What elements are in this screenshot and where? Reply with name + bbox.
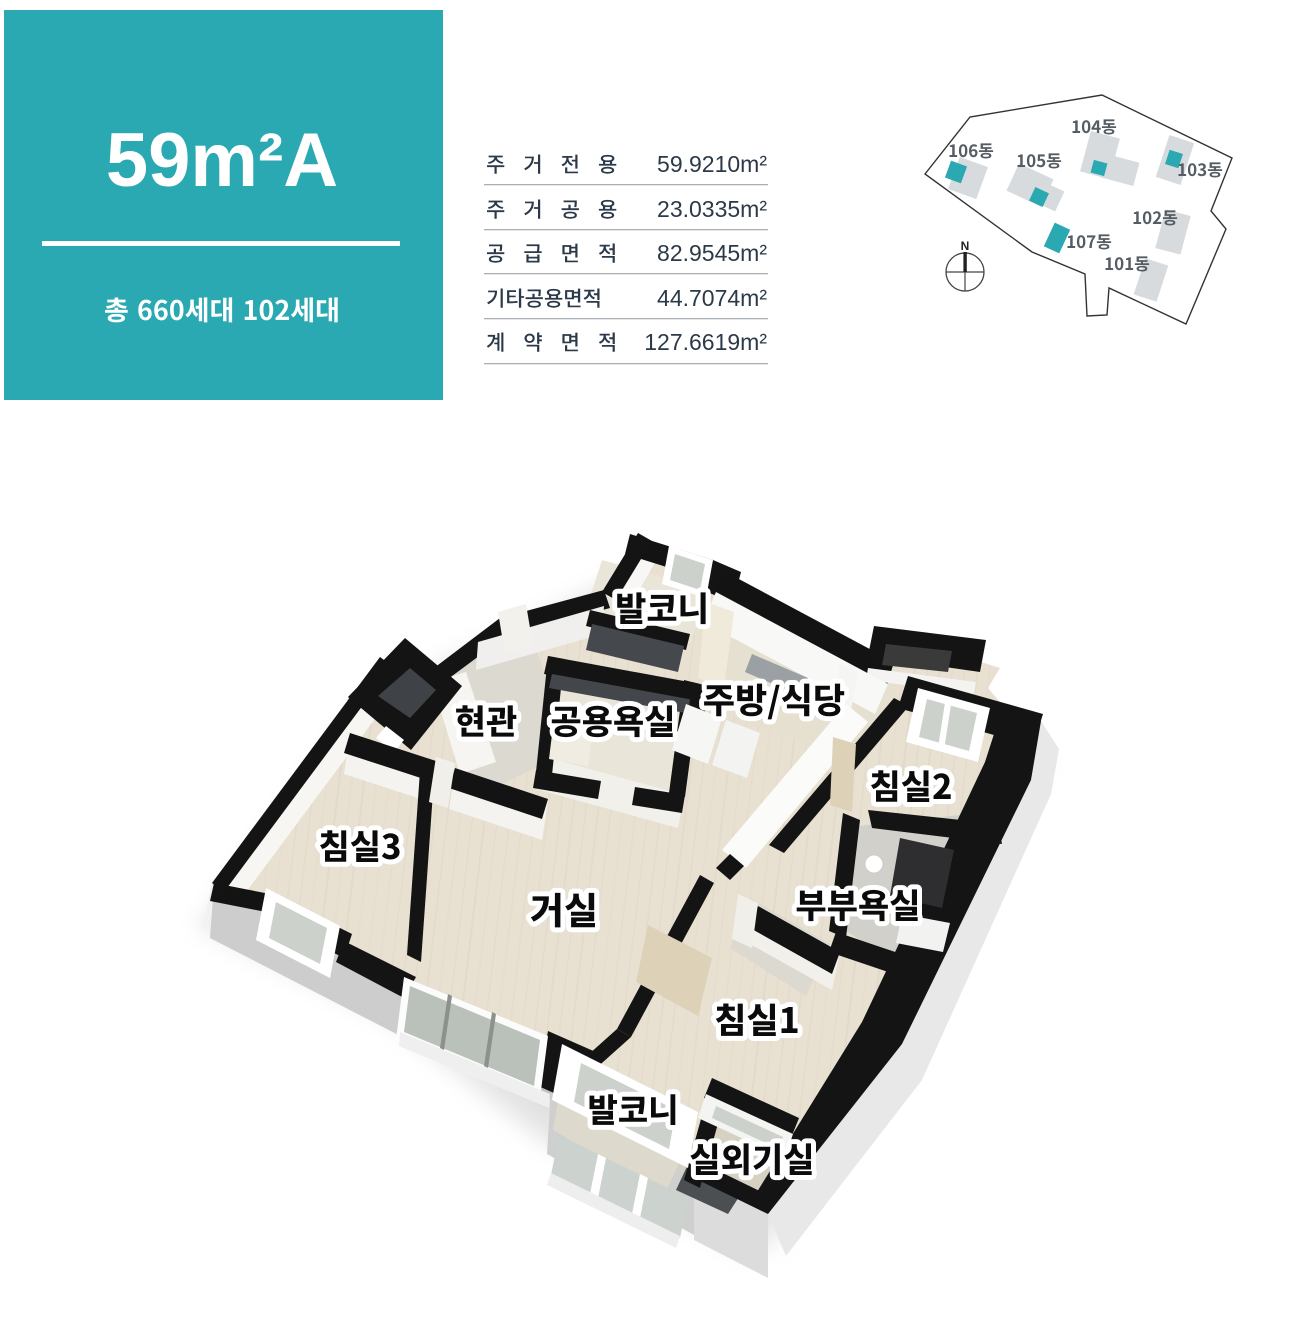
svg-text:44.7074m²: 44.7074m² [657,285,767,311]
svg-text:82.9545m²: 82.9545m² [657,240,767,266]
svg-text:59m²A: 59m²A [106,118,338,203]
svg-text:59.9210m²: 59.9210m² [657,151,767,177]
svg-text:23.0335m²: 23.0335m² [657,196,767,222]
svg-text:127.6619m²: 127.6619m² [644,329,767,355]
svg-text:N: N [961,239,970,253]
